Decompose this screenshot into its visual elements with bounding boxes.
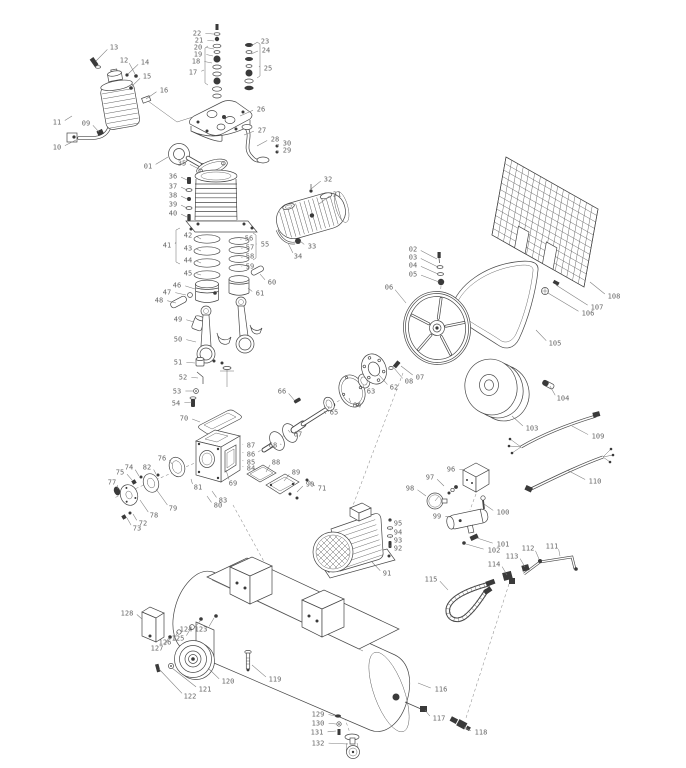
part-callout-85: 85	[243, 458, 255, 466]
part-callout-25: 25	[259, 64, 272, 72]
elbow-fitting-114	[502, 571, 515, 584]
svg-text:113: 113	[506, 552, 519, 560]
svg-text:76: 76	[158, 454, 166, 462]
svg-text:36: 36	[169, 172, 177, 180]
svg-text:121: 121	[199, 685, 212, 693]
svg-text:10: 10	[53, 143, 61, 151]
svg-text:81: 81	[194, 483, 202, 491]
svg-text:29: 29	[283, 146, 291, 154]
piston-rings-left	[176, 228, 220, 279]
part-callout-23: 23	[251, 37, 269, 46]
svg-text:128: 128	[121, 609, 134, 617]
part-callout-103: 103	[512, 416, 538, 432]
svg-text:93: 93	[394, 536, 402, 544]
part-callout-54: 54	[172, 399, 192, 407]
svg-text:64: 64	[353, 401, 361, 409]
switch-bolts-101-102	[462, 533, 478, 544]
filter-outlet-fitting	[142, 96, 196, 122]
part-callout-49: 49	[174, 315, 194, 323]
svg-text:12: 12	[120, 56, 128, 64]
svg-text:32: 32	[324, 175, 332, 183]
svg-text:71: 71	[318, 484, 326, 492]
part-callout-40: 40	[169, 209, 187, 217]
part-callout-46: 46	[173, 281, 195, 289]
svg-text:07: 07	[416, 373, 424, 381]
part-callout-110: 110	[567, 470, 601, 485]
part-callout-41: 41	[163, 241, 176, 249]
svg-text:68: 68	[269, 441, 277, 449]
part-callout-28: 28	[257, 135, 279, 146]
part-callout-33: 33	[300, 241, 316, 250]
svg-text:89: 89	[292, 468, 300, 476]
part-callout-131: 131	[311, 728, 336, 736]
svg-text:53: 53	[173, 387, 181, 395]
part-callout-113: 113	[506, 552, 525, 567]
pressure-switch	[463, 463, 489, 492]
piston-pin-left	[170, 293, 193, 309]
svg-text:41: 41	[163, 241, 171, 249]
flange-bolts-07-08	[389, 360, 401, 369]
svg-text:52: 52	[179, 373, 187, 381]
svg-text:118: 118	[475, 728, 488, 736]
svg-text:30: 30	[283, 139, 291, 147]
safety-valve-100	[481, 496, 485, 509]
svg-text:125: 125	[172, 634, 185, 642]
part-callout-132: 132	[312, 739, 348, 747]
part-callout-32: 32	[311, 175, 332, 189]
piston-left	[196, 280, 219, 302]
part-callout-92: 92	[390, 544, 402, 552]
svg-text:16: 16	[160, 86, 168, 94]
svg-text:77: 77	[108, 478, 116, 486]
svg-text:119: 119	[269, 675, 282, 683]
svg-text:105: 105	[549, 339, 562, 347]
svg-text:55: 55	[261, 240, 269, 248]
part-callout-79: 79	[156, 489, 177, 512]
part-callout-10: 10	[53, 140, 76, 151]
part-callout-52: 52	[179, 373, 198, 381]
svg-text:46: 46	[173, 281, 181, 289]
svg-text:79: 79	[169, 504, 177, 512]
part-callout-108: 108	[590, 282, 620, 300]
part-callout-112: 112	[522, 544, 539, 559]
part-callout-11: 11	[53, 116, 72, 126]
svg-text:31: 31	[333, 190, 341, 198]
cylinder-fins	[195, 184, 237, 221]
valve-stack-right	[244, 42, 260, 90]
part-callout-38: 38	[169, 191, 187, 199]
manifold-99	[446, 508, 491, 537]
power-cable-110	[524, 448, 614, 493]
part-callout-70: 70	[180, 414, 200, 422]
base-gasket	[199, 410, 242, 434]
air-filter	[97, 67, 141, 131]
filter-stud-13	[90, 57, 101, 68]
svg-text:91: 91	[383, 569, 391, 577]
svg-text:40: 40	[169, 209, 177, 217]
svg-text:82: 82	[143, 463, 151, 471]
valve-stack-left	[205, 24, 222, 98]
crankcase	[196, 430, 240, 482]
svg-text:103: 103	[526, 424, 539, 432]
part-callout-81: 81	[191, 479, 202, 491]
motor-bolt-set	[387, 518, 392, 548]
svg-text:47: 47	[163, 288, 171, 296]
svg-text:50: 50	[174, 335, 182, 343]
svg-text:120: 120	[222, 677, 235, 685]
svg-text:59: 59	[246, 262, 254, 270]
part-callout-97: 97	[426, 473, 444, 486]
svg-text:60: 60	[268, 278, 276, 286]
part-callout-60: 60	[260, 274, 276, 286]
svg-text:98: 98	[406, 484, 414, 492]
svg-text:97: 97	[426, 473, 434, 481]
part-callout-39: 39	[169, 200, 187, 208]
part-callout-34: 34	[288, 243, 302, 260]
svg-text:05: 05	[409, 270, 417, 278]
part-callout-12: 12	[120, 56, 135, 74]
svg-text:58: 58	[246, 252, 254, 260]
svg-text:25: 25	[264, 64, 272, 72]
svg-text:127: 127	[151, 644, 164, 652]
svg-text:70: 70	[180, 414, 188, 422]
electric-motor	[299, 503, 395, 578]
mount-bracket-rear	[302, 590, 344, 637]
part-callout-90: 90	[297, 480, 314, 492]
svg-text:44: 44	[184, 256, 192, 264]
part-callout-15: 15	[131, 72, 151, 87]
pulley-key	[542, 380, 555, 390]
svg-text:122: 122	[184, 692, 197, 700]
crankcase-small-parts	[190, 357, 234, 407]
svg-text:37: 37	[169, 182, 177, 190]
svg-text:104: 104	[557, 394, 570, 402]
pressure-gauge	[427, 493, 447, 509]
svg-text:94: 94	[394, 528, 402, 536]
svg-text:99: 99	[433, 512, 441, 520]
svg-text:49: 49	[174, 315, 182, 323]
svg-text:01: 01	[144, 162, 152, 170]
part-callout-47: 47	[163, 288, 186, 296]
part-callout-107: 107	[556, 285, 603, 311]
svg-text:14: 14	[141, 58, 149, 66]
svg-text:132: 132	[312, 739, 325, 747]
part-callout-51: 51	[174, 358, 195, 366]
svg-text:17: 17	[189, 68, 197, 76]
part-callout-01: 01	[144, 157, 168, 170]
part-callout-105: 105	[536, 330, 561, 347]
svg-text:15: 15	[143, 72, 151, 80]
svg-text:112: 112	[522, 544, 535, 552]
svg-text:33: 33	[308, 242, 316, 250]
flexible-hose	[445, 579, 495, 622]
part-callout-24: 24	[251, 46, 270, 54]
svg-text:62: 62	[390, 383, 398, 391]
part-callout-98: 98	[406, 484, 426, 496]
exploded-parts-diagram: 0102030405060708091011121314151617181920…	[0, 0, 686, 768]
part-callout-19: 19	[194, 50, 213, 58]
svg-text:08: 08	[405, 377, 413, 385]
svg-text:43: 43	[184, 244, 192, 252]
part-callout-74: 74	[125, 463, 139, 476]
svg-text:73: 73	[133, 524, 141, 532]
part-callout-36: 36	[169, 172, 187, 180]
svg-text:115: 115	[425, 575, 438, 583]
connecting-rods	[197, 297, 262, 365]
svg-text:66: 66	[278, 387, 286, 395]
svg-text:34: 34	[294, 252, 302, 260]
svg-text:65: 65	[330, 408, 338, 416]
svg-text:24: 24	[262, 46, 270, 54]
part-callout-50: 50	[174, 335, 196, 343]
svg-text:26: 26	[257, 105, 265, 113]
svg-text:18: 18	[192, 57, 200, 65]
svg-text:21: 21	[195, 36, 203, 44]
svg-text:06: 06	[385, 283, 393, 291]
svg-text:87: 87	[247, 441, 255, 449]
part-callout-20: 20	[194, 43, 214, 51]
svg-text:11: 11	[53, 118, 61, 126]
switch-fitting-97	[448, 485, 458, 494]
svg-text:100: 100	[497, 508, 510, 516]
rubber-foot	[142, 607, 164, 642]
svg-text:67: 67	[294, 430, 302, 438]
svg-text:27: 27	[258, 126, 266, 134]
svg-text:111: 111	[546, 542, 559, 550]
part-callout-78: 78	[140, 500, 158, 519]
part-callout-87: 87	[243, 441, 256, 449]
part-callout-37: 37	[169, 182, 187, 190]
unloader-tube	[521, 557, 577, 574]
svg-text:02: 02	[409, 245, 417, 253]
svg-text:95: 95	[394, 519, 402, 527]
part-callout-17: 17	[189, 68, 204, 76]
svg-text:63: 63	[367, 387, 375, 395]
svg-text:20: 20	[194, 43, 202, 51]
svg-text:114: 114	[488, 560, 501, 568]
part-callout-06: 06	[385, 283, 406, 303]
pump-cylinder	[186, 170, 257, 232]
flywheel-bolt-stack	[437, 252, 444, 285]
part-callout-29: 29	[277, 146, 291, 154]
part-callout-109: 109	[572, 426, 604, 440]
svg-text:107: 107	[591, 303, 604, 311]
part-callout-130: 130	[312, 719, 336, 727]
svg-text:123: 123	[195, 625, 208, 633]
part-callout-09: 09	[82, 119, 99, 132]
svg-text:04: 04	[409, 261, 417, 269]
part-callout-82: 82	[143, 463, 156, 474]
part-callout-116: 116	[418, 683, 447, 693]
part-callout-61: 61	[248, 288, 264, 297]
cylinder-head	[190, 101, 253, 142]
part-callout-18: 18	[192, 57, 212, 65]
part-callout-115: 115	[425, 575, 448, 590]
svg-text:13: 13	[110, 43, 118, 51]
air-tank	[173, 557, 418, 737]
part-callout-55: 55	[257, 240, 270, 248]
svg-text:85: 85	[247, 458, 255, 466]
power-cable-109	[508, 411, 601, 454]
svg-text:22: 22	[193, 29, 201, 37]
svg-text:117: 117	[433, 714, 446, 722]
part-callout-66: 66	[278, 387, 295, 401]
svg-text:28: 28	[271, 135, 279, 143]
svg-text:88: 88	[272, 458, 280, 466]
svg-text:38: 38	[169, 191, 177, 199]
svg-text:51: 51	[174, 358, 182, 366]
svg-text:116: 116	[435, 685, 448, 693]
motor-pulley	[459, 354, 535, 427]
svg-text:96: 96	[447, 465, 455, 473]
svg-text:110: 110	[589, 477, 602, 485]
part-callout-95: 95	[390, 519, 402, 527]
svg-text:83: 83	[219, 496, 227, 504]
filter-bolt-12	[134, 74, 138, 78]
part-callout-128: 128	[121, 609, 142, 619]
svg-text:92: 92	[394, 544, 402, 552]
svg-text:23: 23	[261, 37, 269, 45]
svg-text:75: 75	[116, 468, 124, 476]
svg-text:03: 03	[409, 253, 417, 261]
part-callout-96: 96	[447, 465, 465, 473]
svg-text:56: 56	[245, 234, 253, 242]
svg-text:45: 45	[184, 269, 192, 277]
part-callout-13: 13	[96, 43, 118, 61]
diagram-canvas: 0102030405060708091011121314151617181920…	[0, 0, 686, 768]
svg-text:35: 35	[178, 159, 186, 167]
svg-text:69: 69	[229, 479, 237, 487]
svg-text:102: 102	[488, 546, 501, 554]
svg-text:42: 42	[184, 231, 192, 239]
svg-text:86: 86	[247, 450, 255, 458]
svg-text:09: 09	[82, 119, 90, 127]
svg-text:61: 61	[256, 289, 264, 297]
svg-text:90: 90	[306, 480, 314, 488]
part-callout-21: 21	[195, 36, 214, 44]
svg-text:48: 48	[155, 296, 163, 304]
svg-text:131: 131	[311, 728, 324, 736]
part-callout-65: 65	[329, 406, 339, 416]
svg-text:54: 54	[172, 399, 180, 407]
svg-text:129: 129	[312, 710, 325, 718]
part-callout-86: 86	[243, 450, 255, 458]
svg-text:108: 108	[608, 292, 621, 300]
svg-text:109: 109	[592, 432, 605, 440]
svg-text:57: 57	[246, 243, 254, 251]
svg-text:78: 78	[150, 511, 158, 519]
part-callout-111: 111	[546, 542, 560, 556]
svg-text:74: 74	[125, 463, 133, 471]
part-callout-53: 53	[173, 387, 194, 395]
svg-text:39: 39	[169, 200, 177, 208]
part-callout-102: 102	[466, 544, 500, 554]
svg-text:130: 130	[312, 719, 325, 727]
mount-bracket-front	[230, 557, 272, 604]
part-callout-117: 117	[425, 710, 445, 722]
svg-text:19: 19	[194, 50, 202, 58]
